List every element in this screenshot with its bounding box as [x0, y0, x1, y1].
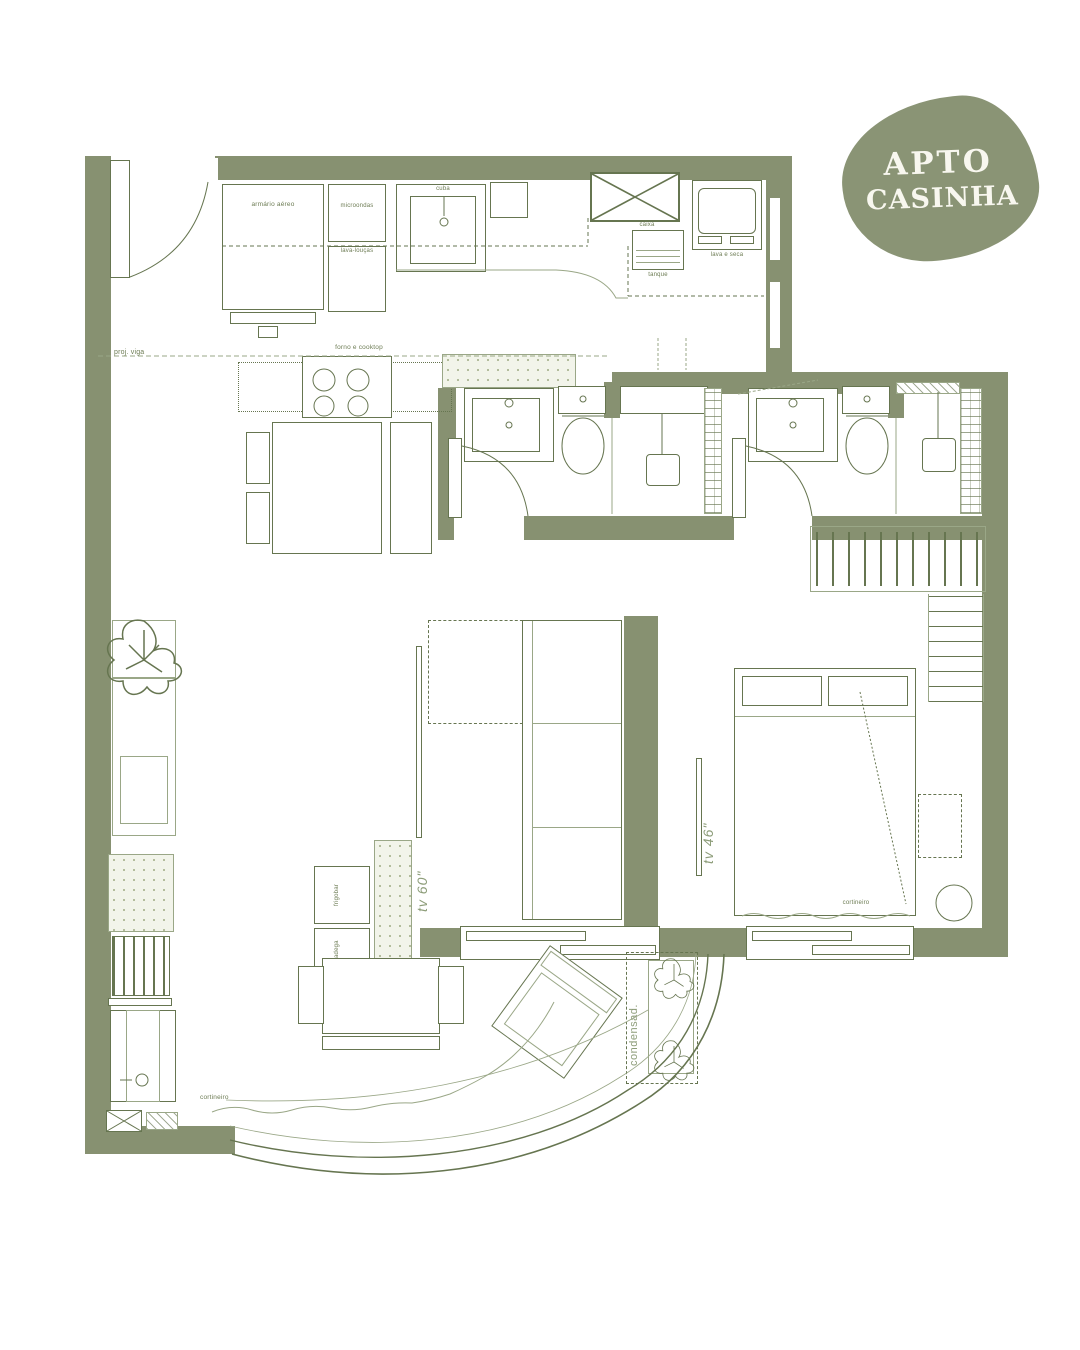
granite-square: [108, 854, 174, 932]
wall-shower1-stub: [604, 382, 620, 418]
microwave: [328, 184, 386, 242]
bath1-sink-basin: [472, 398, 540, 452]
upper-cabinet-ledge: [230, 312, 316, 324]
sofa-seat-line-1: [533, 723, 621, 724]
bar-fridge: [314, 866, 370, 924]
toilet1-bowl: [562, 418, 604, 474]
wall-living-bottom-stub: [420, 928, 464, 957]
sofa: [522, 620, 622, 920]
hatch-box-small: [146, 1112, 178, 1130]
slatted-panel: [112, 936, 170, 996]
floor-plan-poster: armário aéreo microondas lava-louças cub…: [0, 0, 1080, 1350]
wall-bath-bottom-b: [524, 516, 734, 540]
toilet2-tank: [842, 386, 890, 414]
wall-bedroom-bottom-right: [910, 928, 1008, 957]
entrance-door-leaf: [110, 160, 130, 278]
dishwasher: [328, 246, 386, 312]
upper-cabinet-handle: [258, 326, 278, 338]
label-cuba: cuba: [432, 186, 454, 193]
wall-divider-living-bedroom: [624, 616, 658, 957]
label-tv60: tv 60": [414, 820, 430, 912]
pouf: [120, 756, 168, 824]
pillow-right: [828, 676, 908, 706]
logo-badge: APTO CASINHA: [834, 88, 1046, 270]
shower1-drain-box: [646, 454, 680, 486]
label-cortineiro-bedroom: cortineiro: [834, 900, 878, 907]
bath2-glass-strip: [896, 382, 960, 394]
logo-text-line1: APTO: [883, 143, 994, 183]
label-armario-aereo: armário aéreo: [232, 201, 314, 208]
window-slit-2: [770, 282, 780, 348]
armchair: [491, 945, 623, 1079]
dining-chair-left: [298, 966, 324, 1024]
shaft-box: [590, 172, 680, 222]
bath2-sink-basin: [756, 398, 824, 452]
island-cabinet-a: [272, 422, 382, 554]
cooktop: [302, 356, 392, 418]
entrance-door-arc: [130, 182, 208, 277]
living-window-sash-1: [466, 931, 586, 941]
nightstand: [918, 794, 962, 858]
wall-bath-bottom-a: [438, 516, 454, 540]
closet-hangers: [816, 532, 980, 586]
side-bench-top: [112, 620, 176, 678]
sofa-chaise: [428, 620, 528, 724]
sofa-seat-line-2: [533, 827, 621, 828]
logo-text-line2: CASINHA: [865, 180, 1019, 216]
washer-dryer-door: [698, 188, 756, 234]
sink-basin: [410, 196, 476, 264]
dining-bench: [322, 1036, 440, 1050]
label-condensadora: condensad.: [628, 976, 640, 1066]
wall-top: [215, 156, 792, 180]
shower2-drain-box: [922, 438, 956, 472]
shower1-shelf: [620, 386, 708, 414]
toilet2-bowl: [846, 418, 888, 474]
tv60-panel: [416, 646, 422, 838]
slatted-panel-ledge: [108, 998, 172, 1006]
bedroom-window-sash-2: [812, 945, 910, 955]
washer-wheel-right: [730, 236, 754, 244]
bath2-tile-strip: [960, 388, 982, 514]
door-jamb-entrance: [206, 158, 218, 180]
label-forno-cooktop: forno e cooktop: [306, 344, 412, 351]
bedside-round-table: [936, 885, 972, 921]
bed-sheet-line: [735, 716, 915, 717]
stool-2: [246, 492, 270, 544]
condenser-unit: [648, 960, 694, 1074]
label-caixa: caixa: [634, 222, 660, 229]
bedroom-window-sash-1: [752, 931, 852, 941]
label-lava-e-seca: lava e seca: [692, 252, 762, 259]
label-microondas: microondas: [329, 203, 385, 210]
island-cabinet-b: [390, 422, 432, 554]
dining-chair-right: [438, 966, 464, 1024]
bath1-door-leaf: [448, 438, 462, 518]
sofa-arm-line: [532, 621, 533, 919]
pillow-left: [742, 676, 822, 706]
closet-shelves: [928, 594, 984, 702]
label-cortineiro-balcony: cortineiro: [200, 1094, 229, 1101]
window-slit-1: [770, 198, 780, 260]
label-proj-viga: proj. viga: [114, 349, 144, 357]
dining-table: [322, 958, 440, 1034]
tank-line-2: [636, 256, 680, 257]
label-tanque: tanque: [634, 272, 682, 279]
toilet1-tank: [558, 386, 606, 414]
bath1-tile-strip: [704, 388, 722, 514]
tank-line-1: [636, 250, 680, 251]
label-frigobar: frigobar: [334, 870, 341, 920]
counter-edge: [396, 270, 628, 298]
shaft-box-small: [106, 1110, 142, 1132]
washer-wheel-left: [698, 236, 722, 244]
desk-inner: [126, 1010, 160, 1102]
tank-line-3: [636, 262, 680, 263]
wall-right: [982, 372, 1008, 957]
bath2-door-leaf: [732, 438, 746, 518]
stool-1: [246, 432, 270, 484]
label-tv46: tv 46": [700, 798, 716, 864]
label-lava-loucas: lava-louças: [329, 248, 385, 255]
counter-box: [490, 182, 528, 218]
bath1-counter-hatch: [442, 354, 576, 388]
